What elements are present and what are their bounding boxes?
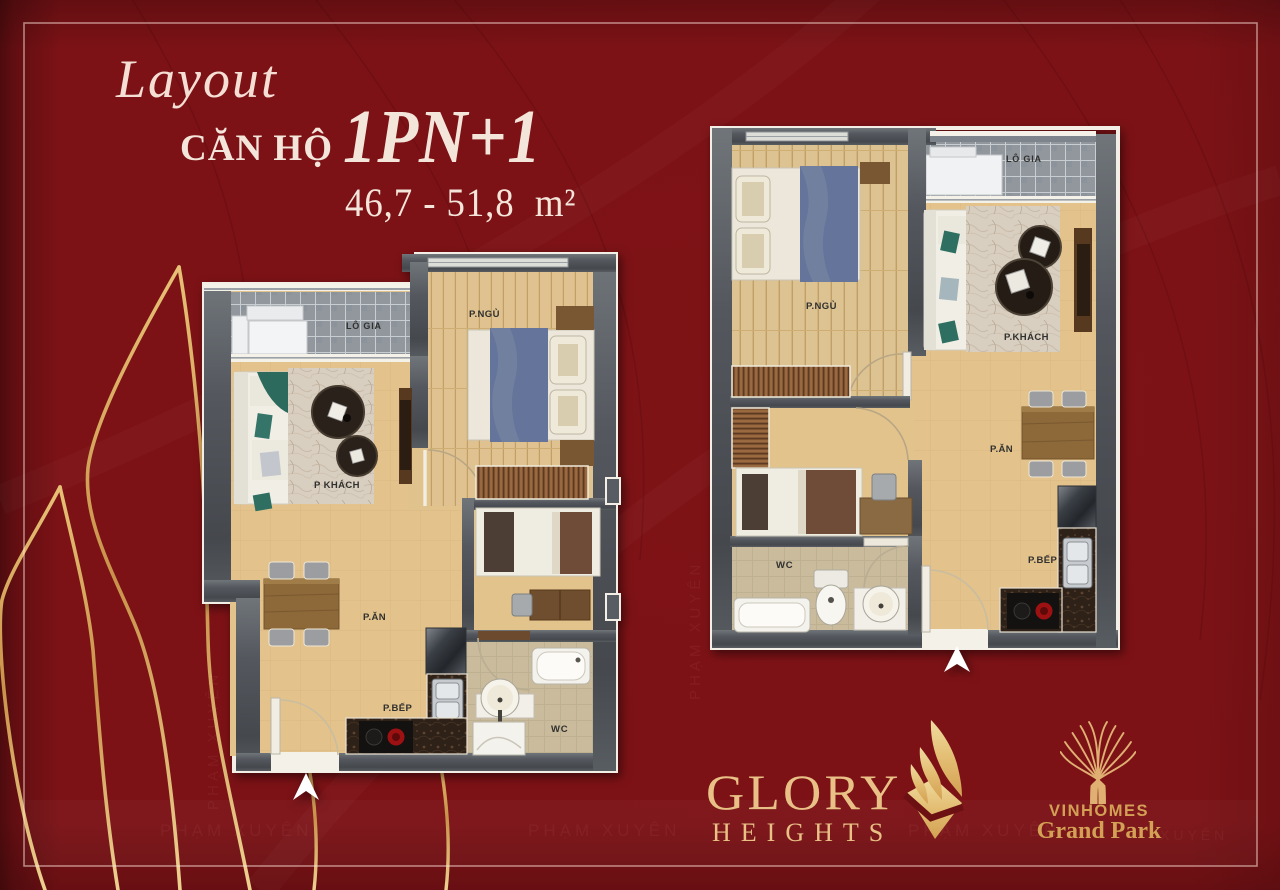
svg-text:PHẠM XUYÊN: PHẠM XUYÊN bbox=[160, 821, 312, 840]
svg-text:P.BẾP: P.BẾP bbox=[1028, 555, 1058, 566]
svg-text:WC: WC bbox=[776, 560, 793, 571]
svg-text:P.ĂN: P.ĂN bbox=[990, 444, 1013, 455]
svg-text:P.NGỦ: P.NGỦ bbox=[469, 308, 500, 320]
svg-text:P.KHÁCH: P.KHÁCH bbox=[1004, 332, 1049, 343]
svg-text:P.BẾP: P.BẾP bbox=[383, 703, 413, 714]
svg-text:PHẠM XUYÊN: PHẠM XUYÊN bbox=[528, 821, 680, 840]
svg-text:P.NGỦ: P.NGỦ bbox=[806, 300, 837, 312]
svg-text:LÔ GIA: LÔ GIA bbox=[346, 320, 382, 331]
svg-text:LÔ GIA: LÔ GIA bbox=[1006, 153, 1042, 164]
svg-text:P KHÁCH: P KHÁCH bbox=[314, 480, 360, 491]
svg-text:P.ĂN: P.ĂN bbox=[363, 612, 386, 623]
svg-text:WC: WC bbox=[551, 724, 568, 735]
